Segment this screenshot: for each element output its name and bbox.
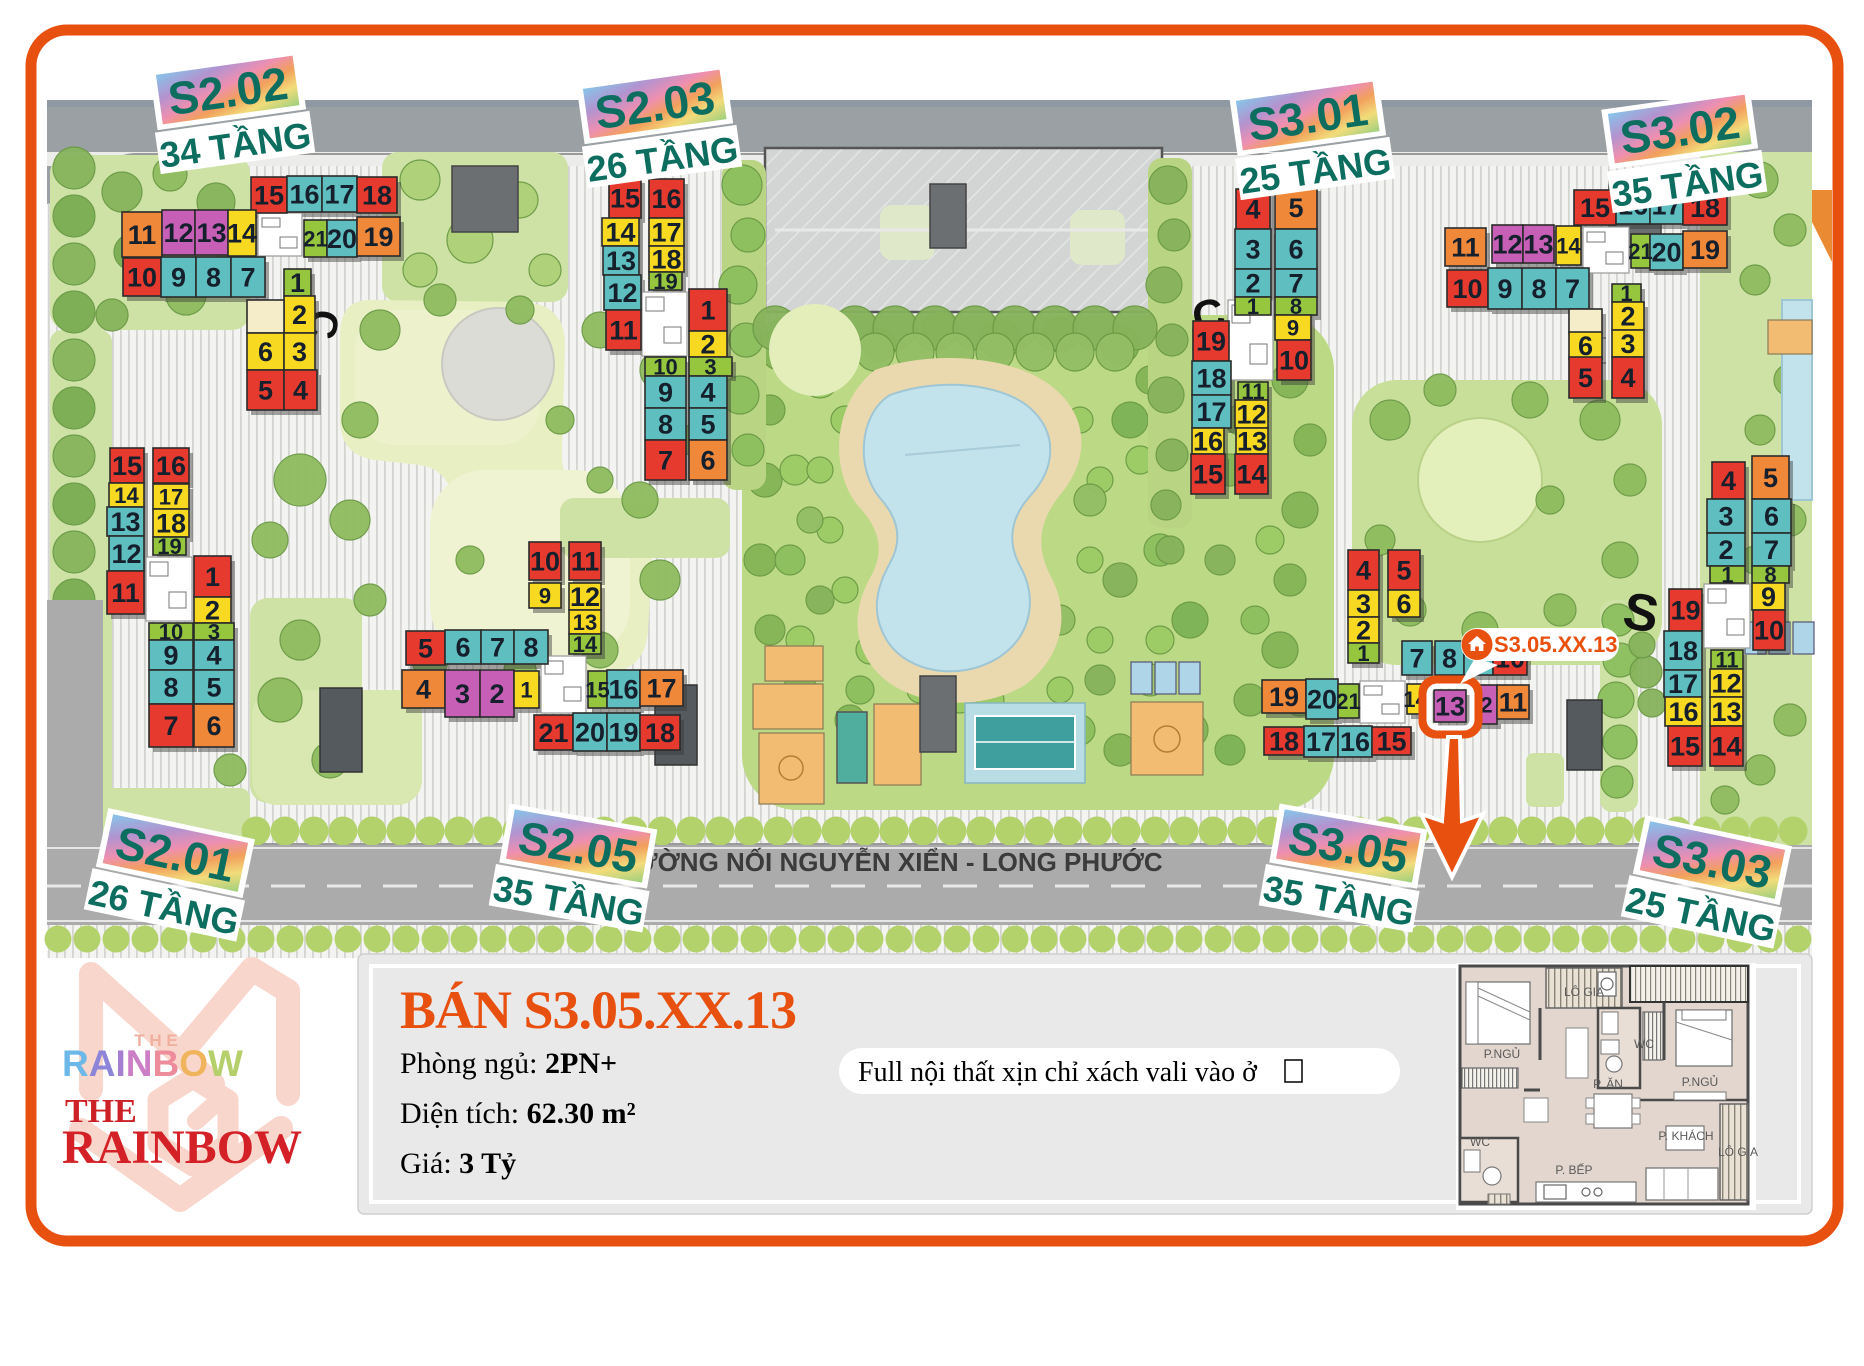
svg-text:Diện tích: 62.30 m²: Diện tích: 62.30 m² [400,1097,636,1130]
svg-text:P. KHÁCH: P. KHÁCH [1658,1128,1713,1143]
svg-text:BÁN S3.05.XX.13: BÁN S3.05.XX.13 [400,980,796,1040]
svg-text:12: 12 [1492,230,1522,260]
svg-text:15: 15 [1670,732,1700,762]
svg-text:LÔ GIA: LÔ GIA [1564,984,1604,999]
svg-text:16: 16 [1340,727,1370,757]
svg-text:17: 17 [324,180,354,210]
svg-text:1: 1 [1357,641,1369,666]
svg-text:7: 7 [240,263,255,293]
svg-text:3: 3 [1718,502,1733,532]
svg-text:P.NGỦ: P.NGỦ [1682,1074,1718,1089]
svg-text:6: 6 [1288,235,1303,265]
svg-text:4: 4 [293,376,308,406]
svg-text:5: 5 [418,634,433,664]
svg-text:3: 3 [1356,589,1371,619]
svg-text:8: 8 [523,633,538,663]
svg-text:7: 7 [163,711,178,741]
svg-text:5: 5 [700,410,715,440]
svg-text:10: 10 [1452,274,1482,304]
svg-text:18: 18 [1196,364,1226,394]
svg-text:19: 19 [1269,682,1299,712]
svg-text:14: 14 [227,219,257,249]
svg-text:8: 8 [163,673,178,703]
svg-text:4: 4 [700,378,715,408]
svg-text:19: 19 [1670,596,1700,626]
svg-text:7: 7 [1764,535,1779,565]
svg-text:14: 14 [1556,233,1581,258]
svg-text:12: 12 [1236,400,1266,430]
svg-text:Phòng ngủ: 2PN+: Phòng ngủ: 2PN+ [400,1047,617,1080]
svg-text:19: 19 [1690,235,1720,265]
svg-text:10: 10 [1279,346,1309,376]
svg-text:19: 19 [157,534,181,559]
svg-text:11: 11 [128,220,157,250]
svg-text:21: 21 [538,718,568,748]
svg-text:20: 20 [327,224,357,254]
svg-text:1: 1 [1247,294,1259,319]
svg-text:15: 15 [1193,460,1223,490]
svg-text:16: 16 [1668,697,1698,727]
svg-text:2: 2 [292,300,307,330]
svg-text:6: 6 [1764,502,1779,532]
svg-text:10: 10 [530,547,560,577]
svg-text:WC: WC [1470,1135,1490,1149]
svg-text:21: 21 [1336,689,1360,714]
svg-text:1: 1 [700,296,715,326]
svg-text:7: 7 [1565,274,1580,304]
svg-text:1: 1 [205,562,220,592]
svg-text:10: 10 [1754,616,1784,646]
svg-text:7: 7 [658,446,673,476]
svg-text:10: 10 [127,263,157,293]
svg-text:9: 9 [163,641,178,671]
svg-text:9: 9 [1287,315,1299,340]
svg-text:21: 21 [303,226,327,251]
svg-text:4: 4 [1620,363,1635,393]
svg-text:4: 4 [1721,466,1736,496]
svg-text:7: 7 [1409,644,1424,674]
svg-text:13: 13 [1435,692,1465,722]
svg-text:RAINBOW: RAINBOW [62,1043,243,1084]
svg-text:3: 3 [292,337,307,367]
svg-text:13: 13 [196,218,226,248]
svg-text:9: 9 [539,583,551,608]
svg-text:6: 6 [1396,589,1411,619]
svg-text:2: 2 [1620,302,1635,332]
svg-text:13: 13 [606,246,636,276]
svg-text:19: 19 [363,222,393,252]
svg-text:6: 6 [455,633,470,663]
svg-text:6: 6 [206,711,221,741]
svg-text:11: 11 [1499,688,1528,718]
svg-text:20: 20 [1651,238,1681,268]
svg-text:15: 15 [112,451,142,481]
svg-text:4: 4 [1356,556,1371,586]
svg-text:3: 3 [1245,235,1260,265]
svg-text:12: 12 [607,278,637,308]
svg-text:14: 14 [605,218,635,248]
svg-text:9: 9 [1761,582,1776,612]
svg-text:15: 15 [610,184,640,214]
svg-text:14: 14 [114,483,139,508]
svg-text:15: 15 [1580,193,1610,223]
svg-text:3: 3 [455,679,470,709]
svg-text:5: 5 [206,673,221,703]
svg-text:2: 2 [1718,535,1733,565]
svg-text:4: 4 [416,675,431,705]
svg-text:1: 1 [290,268,305,298]
svg-text:5: 5 [1578,363,1593,393]
svg-text:ĐƯỜNG NỐI NGUYỄN XIỂN - LONG P: ĐƯỜNG NỐI NGUYỄN XIỂN - LONG PHƯỚC [617,847,1163,877]
svg-text:Giá: 3 Tỷ: Giá: 3 Tỷ [400,1147,516,1180]
svg-text:Full nội thất xịn chỉ xách val: Full nội thất xịn chỉ xách vali vào ở [858,1057,1258,1088]
svg-text:11: 11 [609,316,638,346]
svg-text:17: 17 [1306,727,1336,757]
svg-text:4: 4 [206,641,221,671]
svg-text:12: 12 [111,539,141,569]
svg-text:5: 5 [1288,193,1303,223]
svg-text:6: 6 [700,446,715,476]
svg-text:18: 18 [362,181,392,211]
svg-text:P. BẾP: P. BẾP [1555,1162,1592,1177]
svg-text:5: 5 [1396,556,1411,586]
svg-text:16: 16 [289,180,319,210]
svg-text:17: 17 [1196,397,1226,427]
svg-text:13: 13 [1523,230,1553,260]
svg-text:14: 14 [1236,460,1266,490]
svg-text:9: 9 [1497,274,1512,304]
svg-text:20: 20 [575,718,605,748]
svg-text:RAINBOW: RAINBOW [62,1121,302,1174]
svg-text:P.NGỦ: P.NGỦ [1484,1046,1520,1061]
svg-text:19: 19 [653,269,677,294]
svg-text:9: 9 [171,263,186,293]
svg-text:2: 2 [489,679,504,709]
svg-text:14: 14 [573,632,598,657]
svg-text:11: 11 [571,547,600,577]
svg-text:6: 6 [1578,331,1593,361]
svg-text:5: 5 [258,376,273,406]
svg-text:16: 16 [608,675,638,705]
svg-text:12: 12 [1711,669,1741,699]
svg-text:18: 18 [645,718,675,748]
svg-text:15: 15 [585,677,609,702]
svg-text:1: 1 [1721,562,1733,587]
svg-text:8: 8 [1531,274,1546,304]
svg-text:16: 16 [1193,427,1223,457]
svg-text:17: 17 [159,484,183,509]
svg-text:17: 17 [651,218,681,248]
svg-text:8: 8 [1442,644,1457,674]
svg-text:15: 15 [1376,727,1406,757]
svg-text:8: 8 [658,410,673,440]
svg-text:12: 12 [570,582,600,612]
svg-text:13: 13 [1711,697,1741,727]
svg-text:9: 9 [658,378,673,408]
svg-text:3: 3 [704,354,716,379]
svg-text:21: 21 [1628,239,1652,264]
svg-text:3: 3 [1620,329,1635,359]
svg-text:13: 13 [1237,427,1267,457]
svg-text:14: 14 [1711,732,1741,762]
svg-text:LÔ GIA: LÔ GIA [1718,1144,1758,1159]
svg-text:P. ĂN: P. ĂN [1593,1076,1623,1091]
svg-text:19: 19 [608,718,638,748]
svg-text:6: 6 [258,337,273,367]
svg-text:10: 10 [653,354,677,379]
svg-text:8: 8 [206,263,221,293]
svg-text:18: 18 [1269,727,1299,757]
svg-text:18: 18 [1668,636,1698,666]
svg-text:16: 16 [651,184,681,214]
svg-text:11: 11 [111,578,140,608]
svg-text:WC: WC [1634,1037,1654,1051]
svg-text:16: 16 [156,451,186,481]
svg-text:11: 11 [1451,233,1480,263]
svg-text:15: 15 [254,181,284,211]
svg-text:19: 19 [1196,327,1226,357]
svg-text:7: 7 [490,633,505,663]
svg-text:20: 20 [1307,685,1337,715]
svg-text:13: 13 [110,507,140,537]
svg-text:1: 1 [520,677,532,702]
svg-text:5: 5 [1763,463,1778,493]
svg-text:17: 17 [1668,669,1698,699]
svg-text:12: 12 [163,218,193,248]
svg-text:17: 17 [646,674,676,704]
svg-text:S3.05.XX.13: S3.05.XX.13 [1494,632,1618,657]
